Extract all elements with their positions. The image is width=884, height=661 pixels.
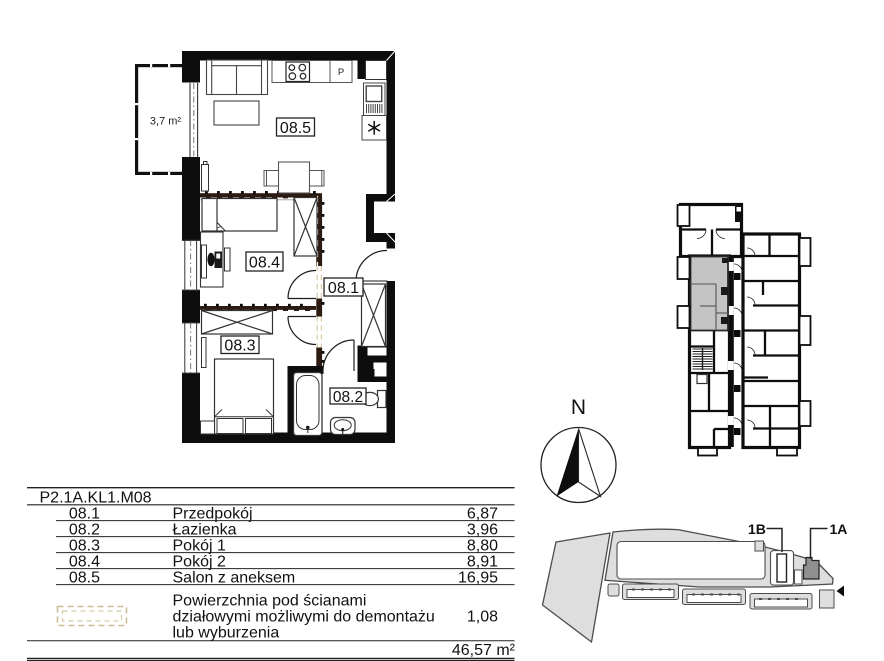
svg-text:Powierzchnia pod ścianami: Powierzchnia pod ścianami — [173, 593, 367, 610]
svg-text:1A: 1A — [830, 521, 848, 537]
svg-text:Salon z aneksem: Salon z aneksem — [173, 570, 296, 587]
svg-text:6,87: 6,87 — [467, 506, 498, 523]
svg-text:N: N — [571, 396, 586, 419]
svg-text:08.5: 08.5 — [69, 570, 100, 587]
svg-text:08.2: 08.2 — [69, 522, 100, 539]
svg-text:Pokój 1: Pokój 1 — [173, 538, 226, 555]
svg-text:8,80: 8,80 — [467, 538, 498, 555]
svg-text:3,96: 3,96 — [467, 522, 498, 539]
svg-text:08.5: 08.5 — [280, 120, 311, 137]
svg-text:lub wyburzenia: lub wyburzenia — [173, 625, 280, 642]
svg-text:1B: 1B — [748, 521, 766, 537]
svg-text:P: P — [338, 67, 344, 78]
svg-text:08.1: 08.1 — [69, 506, 100, 523]
svg-text:08.3: 08.3 — [69, 538, 100, 555]
svg-text:1,08: 1,08 — [467, 609, 498, 626]
svg-text:08.4: 08.4 — [249, 254, 280, 271]
svg-text:08.3: 08.3 — [224, 338, 255, 355]
svg-text:P2.1A.KL1.M08: P2.1A.KL1.M08 — [40, 490, 152, 507]
svg-text:8,91: 8,91 — [467, 554, 498, 571]
svg-text:08.1: 08.1 — [328, 280, 359, 297]
svg-text:08.2: 08.2 — [333, 389, 363, 406]
svg-text:działowymi możliwymi do demont: działowymi możliwymi do demontażu — [173, 609, 435, 626]
svg-text:16,95: 16,95 — [458, 570, 498, 587]
svg-text:Przedpokój: Przedpokój — [173, 506, 253, 523]
svg-text:46,57 m²: 46,57 m² — [452, 642, 516, 659]
svg-text:3,7 m²: 3,7 m² — [150, 116, 182, 128]
svg-text:Łazienka: Łazienka — [173, 522, 237, 539]
svg-text:Pokój 2: Pokój 2 — [173, 554, 226, 571]
svg-text:08.4: 08.4 — [69, 554, 100, 571]
